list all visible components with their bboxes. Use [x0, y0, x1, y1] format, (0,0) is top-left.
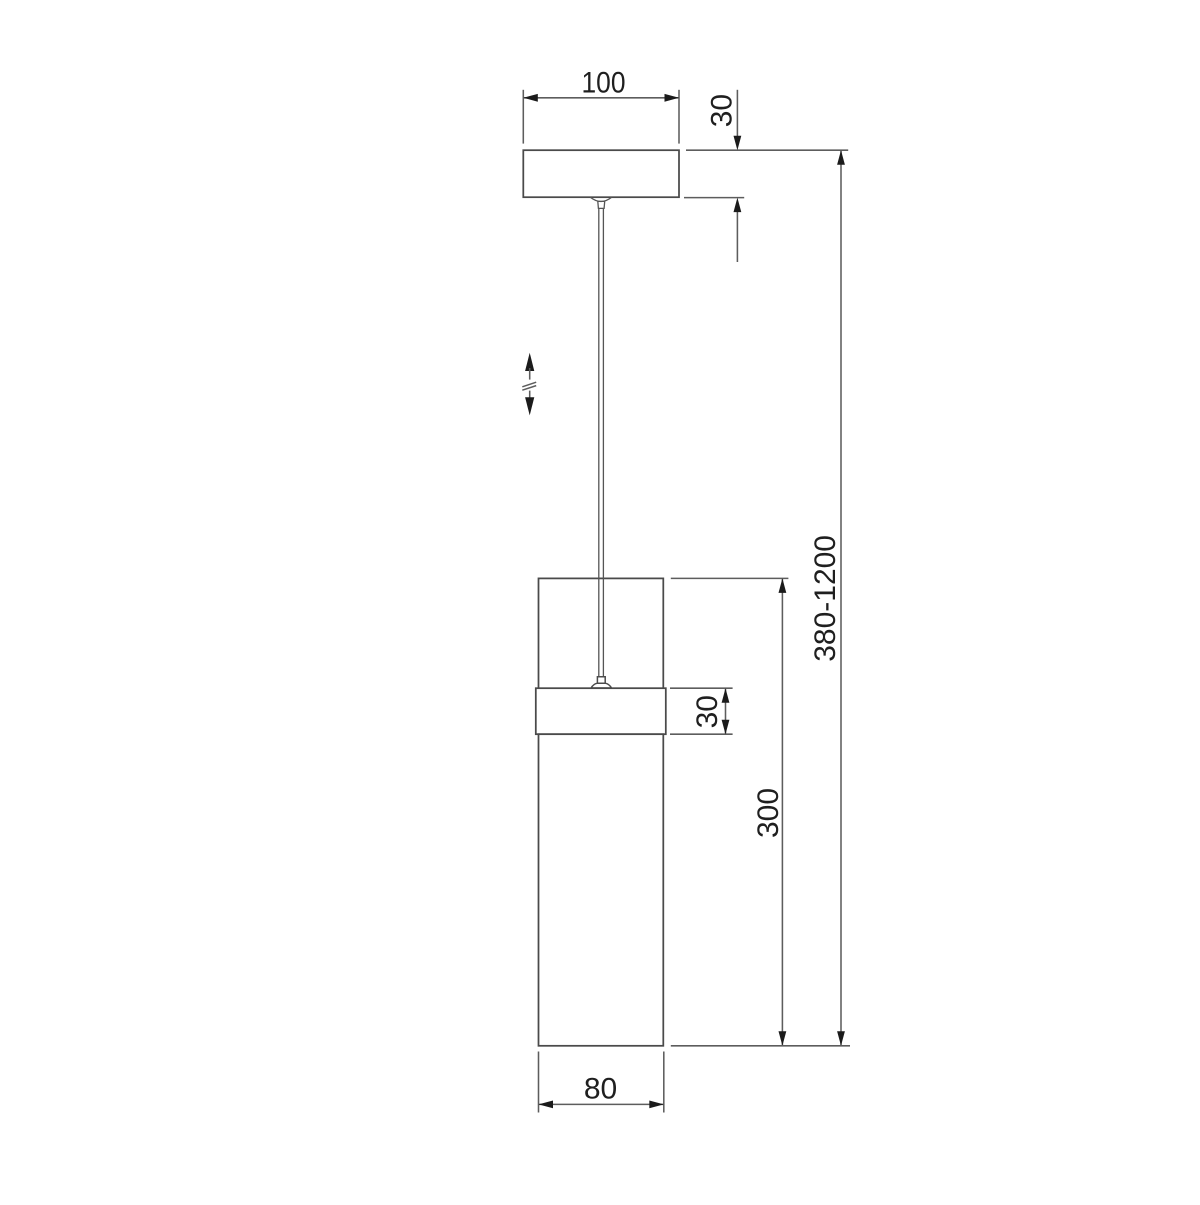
svg-text:30: 30	[691, 695, 724, 728]
svg-text:300: 300	[752, 788, 785, 838]
svg-text:100: 100	[582, 66, 626, 99]
svg-text:30: 30	[705, 94, 738, 127]
svg-text:380-1200: 380-1200	[809, 535, 842, 662]
svg-text:80: 80	[584, 1073, 617, 1106]
